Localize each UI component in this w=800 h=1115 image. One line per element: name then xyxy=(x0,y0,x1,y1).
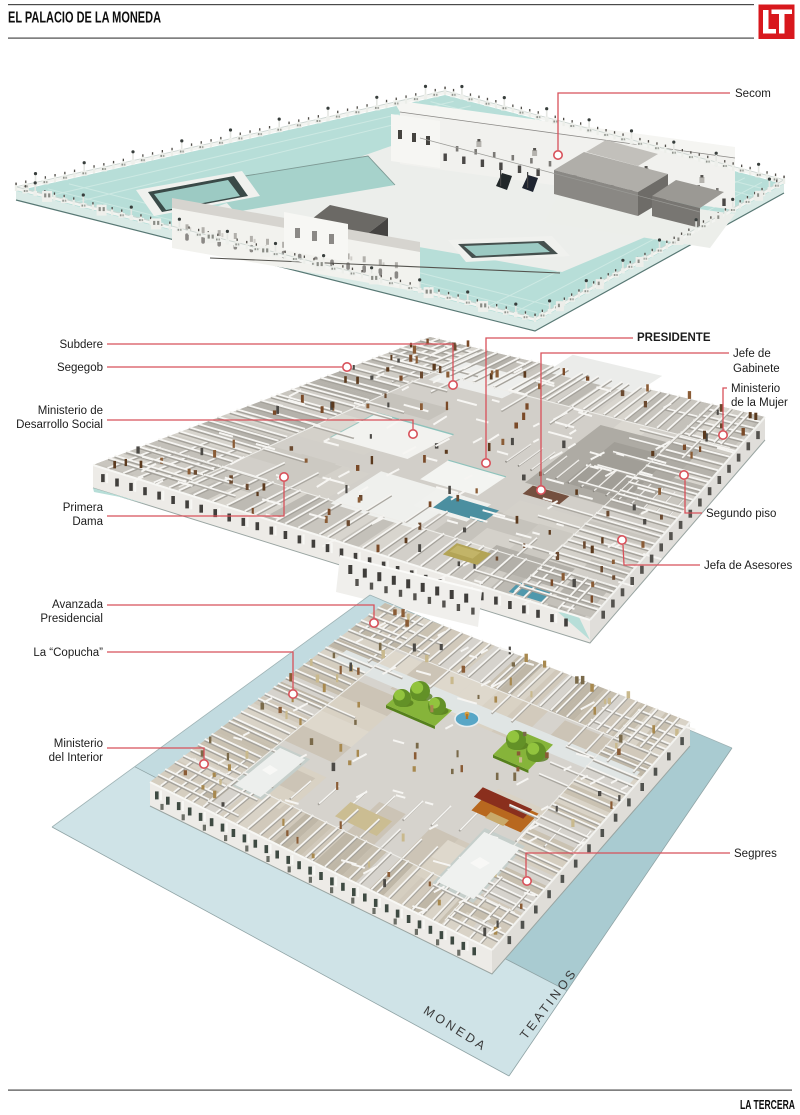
svg-text:de la Mujer: de la Mujer xyxy=(731,397,788,409)
svg-text:LA TERCERA: LA TERCERA xyxy=(740,1098,795,1112)
svg-text:Jefe de: Jefe de xyxy=(733,348,771,360)
svg-text:La “Copucha”: La “Copucha” xyxy=(33,647,103,659)
svg-text:Presidencial: Presidencial xyxy=(40,613,103,625)
svg-text:Ministerio: Ministerio xyxy=(54,738,103,750)
svg-text:Subdere: Subdere xyxy=(60,339,103,351)
svg-text:Desarrollo Social: Desarrollo Social xyxy=(16,419,103,431)
svg-text:PRESIDENTE: PRESIDENTE xyxy=(637,332,711,344)
svg-text:Segpres: Segpres xyxy=(734,848,777,860)
svg-text:Ministerio de: Ministerio de xyxy=(38,405,103,417)
svg-text:Primera: Primera xyxy=(63,502,104,514)
svg-text:del Interior: del Interior xyxy=(49,752,104,764)
svg-text:Segegob: Segegob xyxy=(57,362,103,374)
svg-text:Avanzada: Avanzada xyxy=(52,599,104,611)
svg-text:Ministerio: Ministerio xyxy=(731,383,780,395)
svg-text:EL PALACIO DE LA MONEDA: EL PALACIO DE LA MONEDA xyxy=(8,10,161,27)
svg-text:Gabinete: Gabinete xyxy=(733,363,780,375)
svg-text:Secom: Secom xyxy=(735,88,771,100)
svg-text:Segundo piso: Segundo piso xyxy=(706,508,776,520)
svg-text:Dama: Dama xyxy=(72,516,103,528)
svg-text:Jefa de Asesores: Jefa de Asesores xyxy=(704,560,792,572)
